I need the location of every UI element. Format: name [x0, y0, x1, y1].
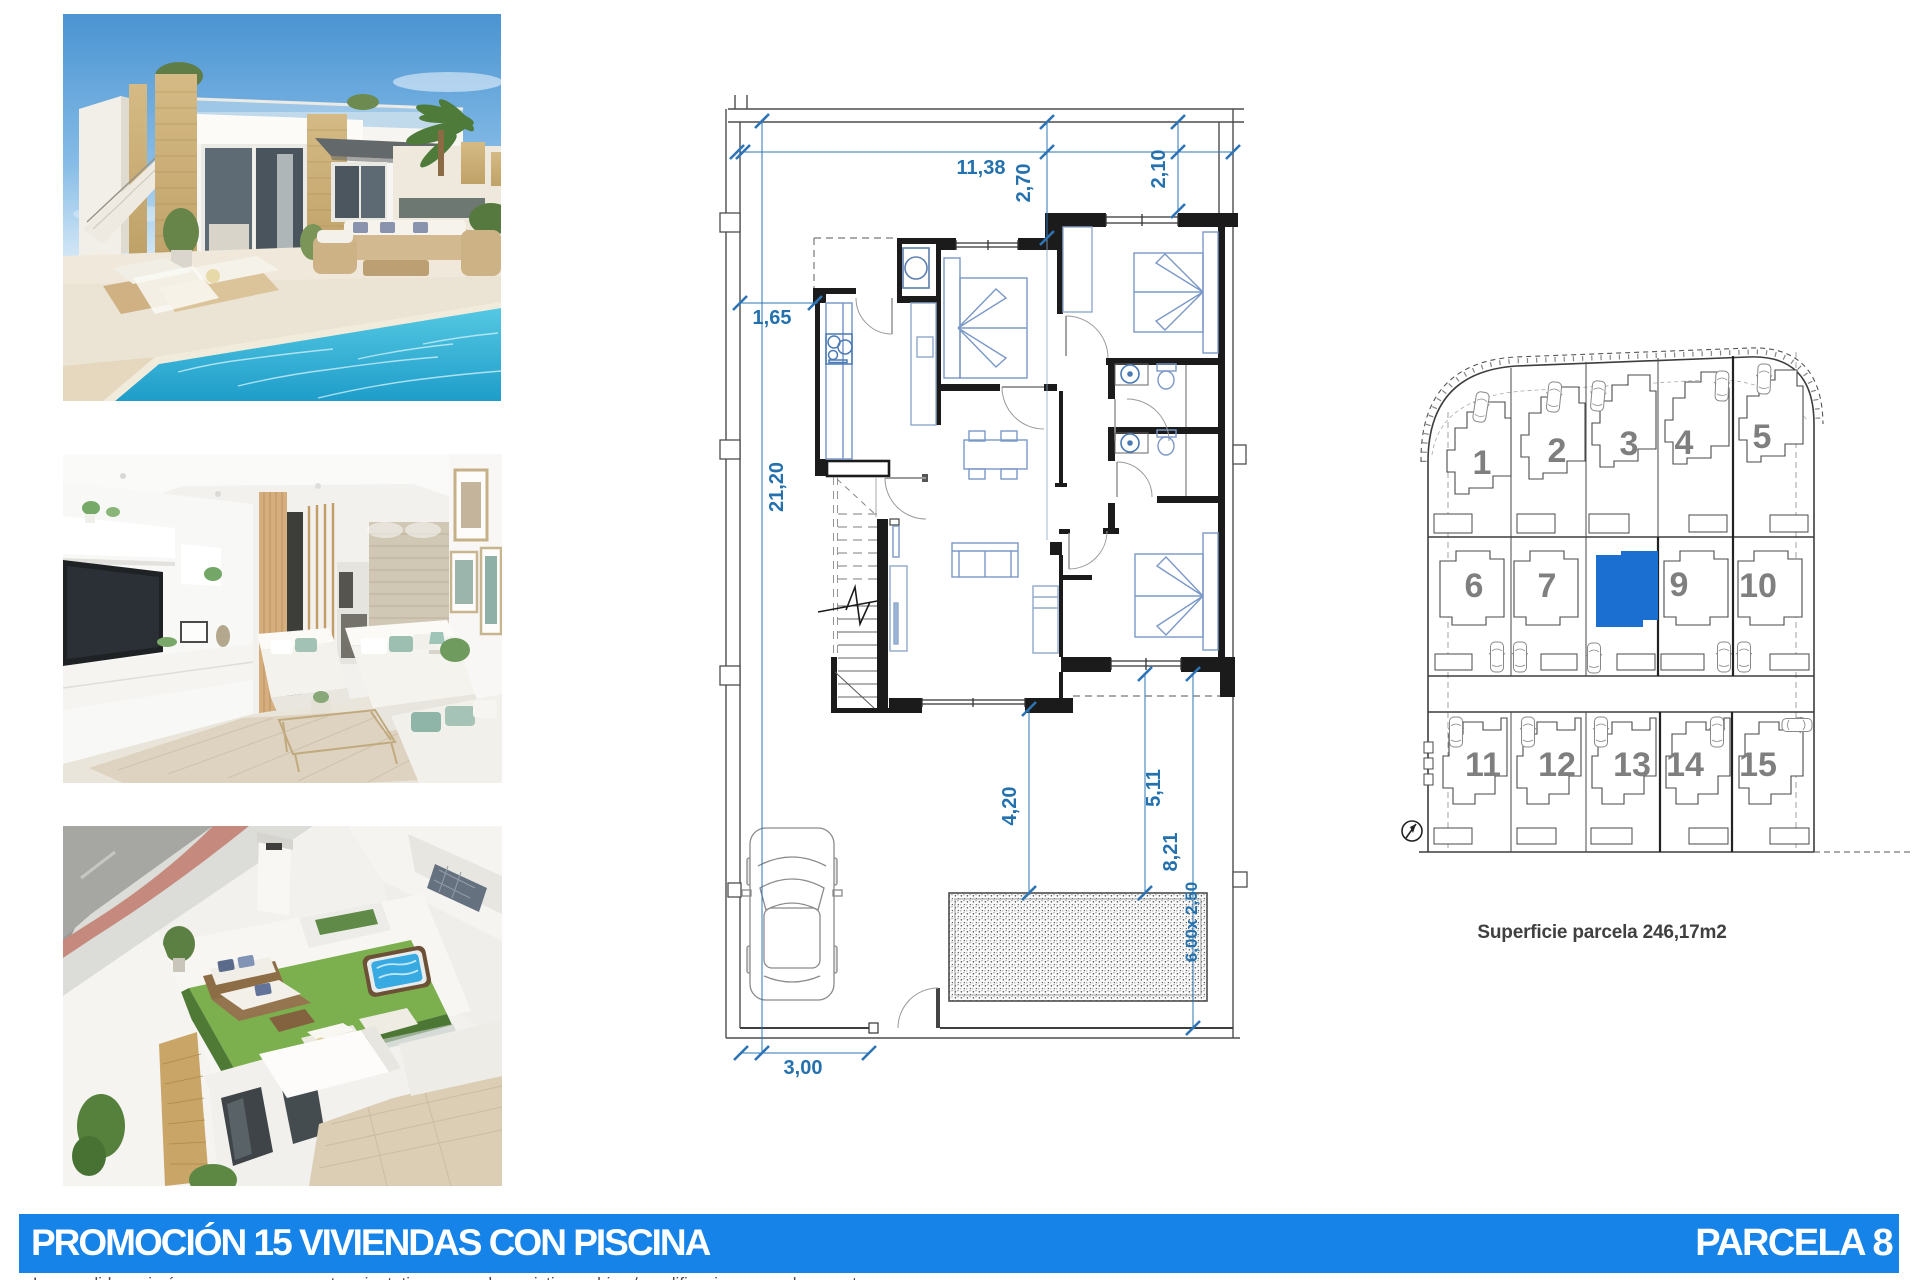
svg-text:7: 7 — [1538, 567, 1557, 605]
svg-text:1,65: 1,65 — [753, 307, 792, 329]
svg-text:6,00x 2,50: 6,00x 2,50 — [1182, 882, 1201, 962]
svg-text:2,70: 2,70 — [1013, 164, 1035, 203]
svg-text:4,20: 4,20 — [999, 787, 1021, 826]
svg-text:2: 2 — [1548, 432, 1567, 470]
svg-text:21,20: 21,20 — [766, 462, 788, 512]
svg-text:1: 1 — [1473, 444, 1492, 482]
svg-text:8,21: 8,21 — [1160, 833, 1182, 872]
svg-text:5: 5 — [1753, 418, 1772, 456]
svg-text:9: 9 — [1670, 566, 1689, 604]
svg-text:10: 10 — [1739, 567, 1777, 605]
svg-text:11,38: 11,38 — [957, 157, 1006, 179]
svg-text:3,00: 3,00 — [784, 1057, 823, 1079]
svg-text:Superficie parcela 246,17m2: Superficie parcela 246,17m2 — [1477, 922, 1726, 943]
svg-text:6: 6 — [1465, 567, 1484, 605]
svg-text:15: 15 — [1739, 746, 1777, 784]
svg-text:13: 13 — [1613, 746, 1651, 784]
svg-text:11: 11 — [1465, 746, 1501, 784]
svg-text:4: 4 — [1675, 424, 1694, 462]
svg-text:5,11: 5,11 — [1143, 769, 1165, 807]
svg-text:2,10: 2,10 — [1148, 150, 1170, 189]
svg-text:12: 12 — [1538, 746, 1576, 784]
svg-text:14: 14 — [1666, 746, 1704, 784]
svg-text:3: 3 — [1620, 425, 1639, 463]
